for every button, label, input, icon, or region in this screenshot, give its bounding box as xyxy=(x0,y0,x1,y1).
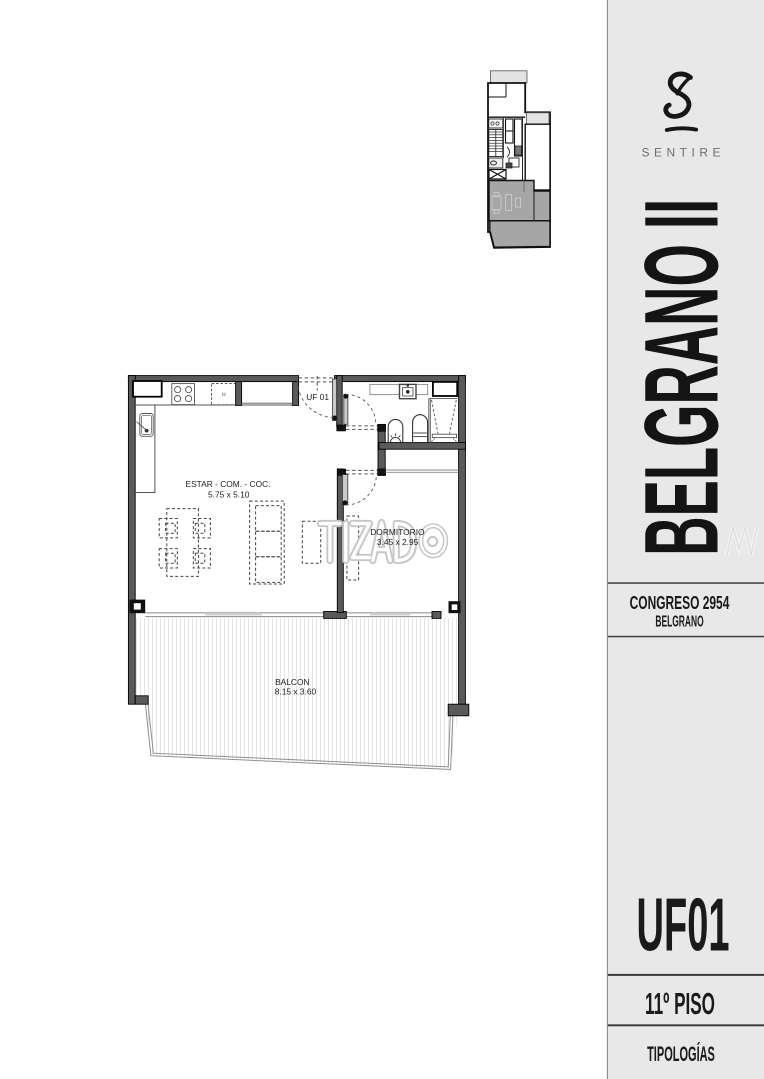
svg-text:3.45 x 2.95: 3.45 x 2.95 xyxy=(377,537,419,547)
svg-text:11º PISO: 11º PISO xyxy=(645,986,715,1021)
svg-text:TIPOLOGÍAS: TIPOLOGÍAS xyxy=(647,1043,715,1066)
svg-text:DORMITORIO: DORMITORIO xyxy=(370,527,425,537)
svg-text:ESTAR - COM. - COC.: ESTAR - COM. - COC. xyxy=(186,479,271,489)
svg-text:UF 01: UF 01 xyxy=(306,392,329,402)
svg-text:UF01: UF01 xyxy=(637,883,730,967)
svg-text:BALCON: BALCON xyxy=(275,677,309,687)
svg-text:5.75 x 5.10: 5.75 x 5.10 xyxy=(208,489,250,499)
svg-text:8.15 x 3.60: 8.15 x 3.60 xyxy=(275,686,317,696)
svg-text:BELGRANO: BELGRANO xyxy=(655,613,703,630)
svg-text:CONGRESO 2954: CONGRESO 2954 xyxy=(630,592,730,613)
svg-text:H: H xyxy=(222,392,226,398)
svg-text:BELGRANO II: BELGRANO II xyxy=(623,199,740,556)
